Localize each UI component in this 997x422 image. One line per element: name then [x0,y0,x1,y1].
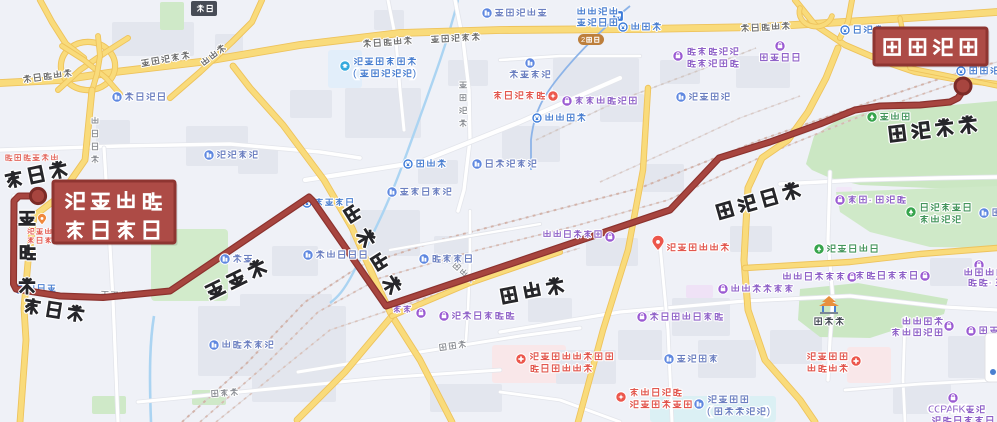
svg-text:(: ( [353,68,357,80]
svg-text:2: 2 [581,35,585,44]
svg-text:·: · [868,194,872,206]
svg-text:): ) [767,406,771,418]
svg-text:): ) [413,68,417,80]
svg-text:·: · [988,277,992,289]
svg-text:(: ( [707,406,711,418]
svg-text:K: K [959,404,966,416]
